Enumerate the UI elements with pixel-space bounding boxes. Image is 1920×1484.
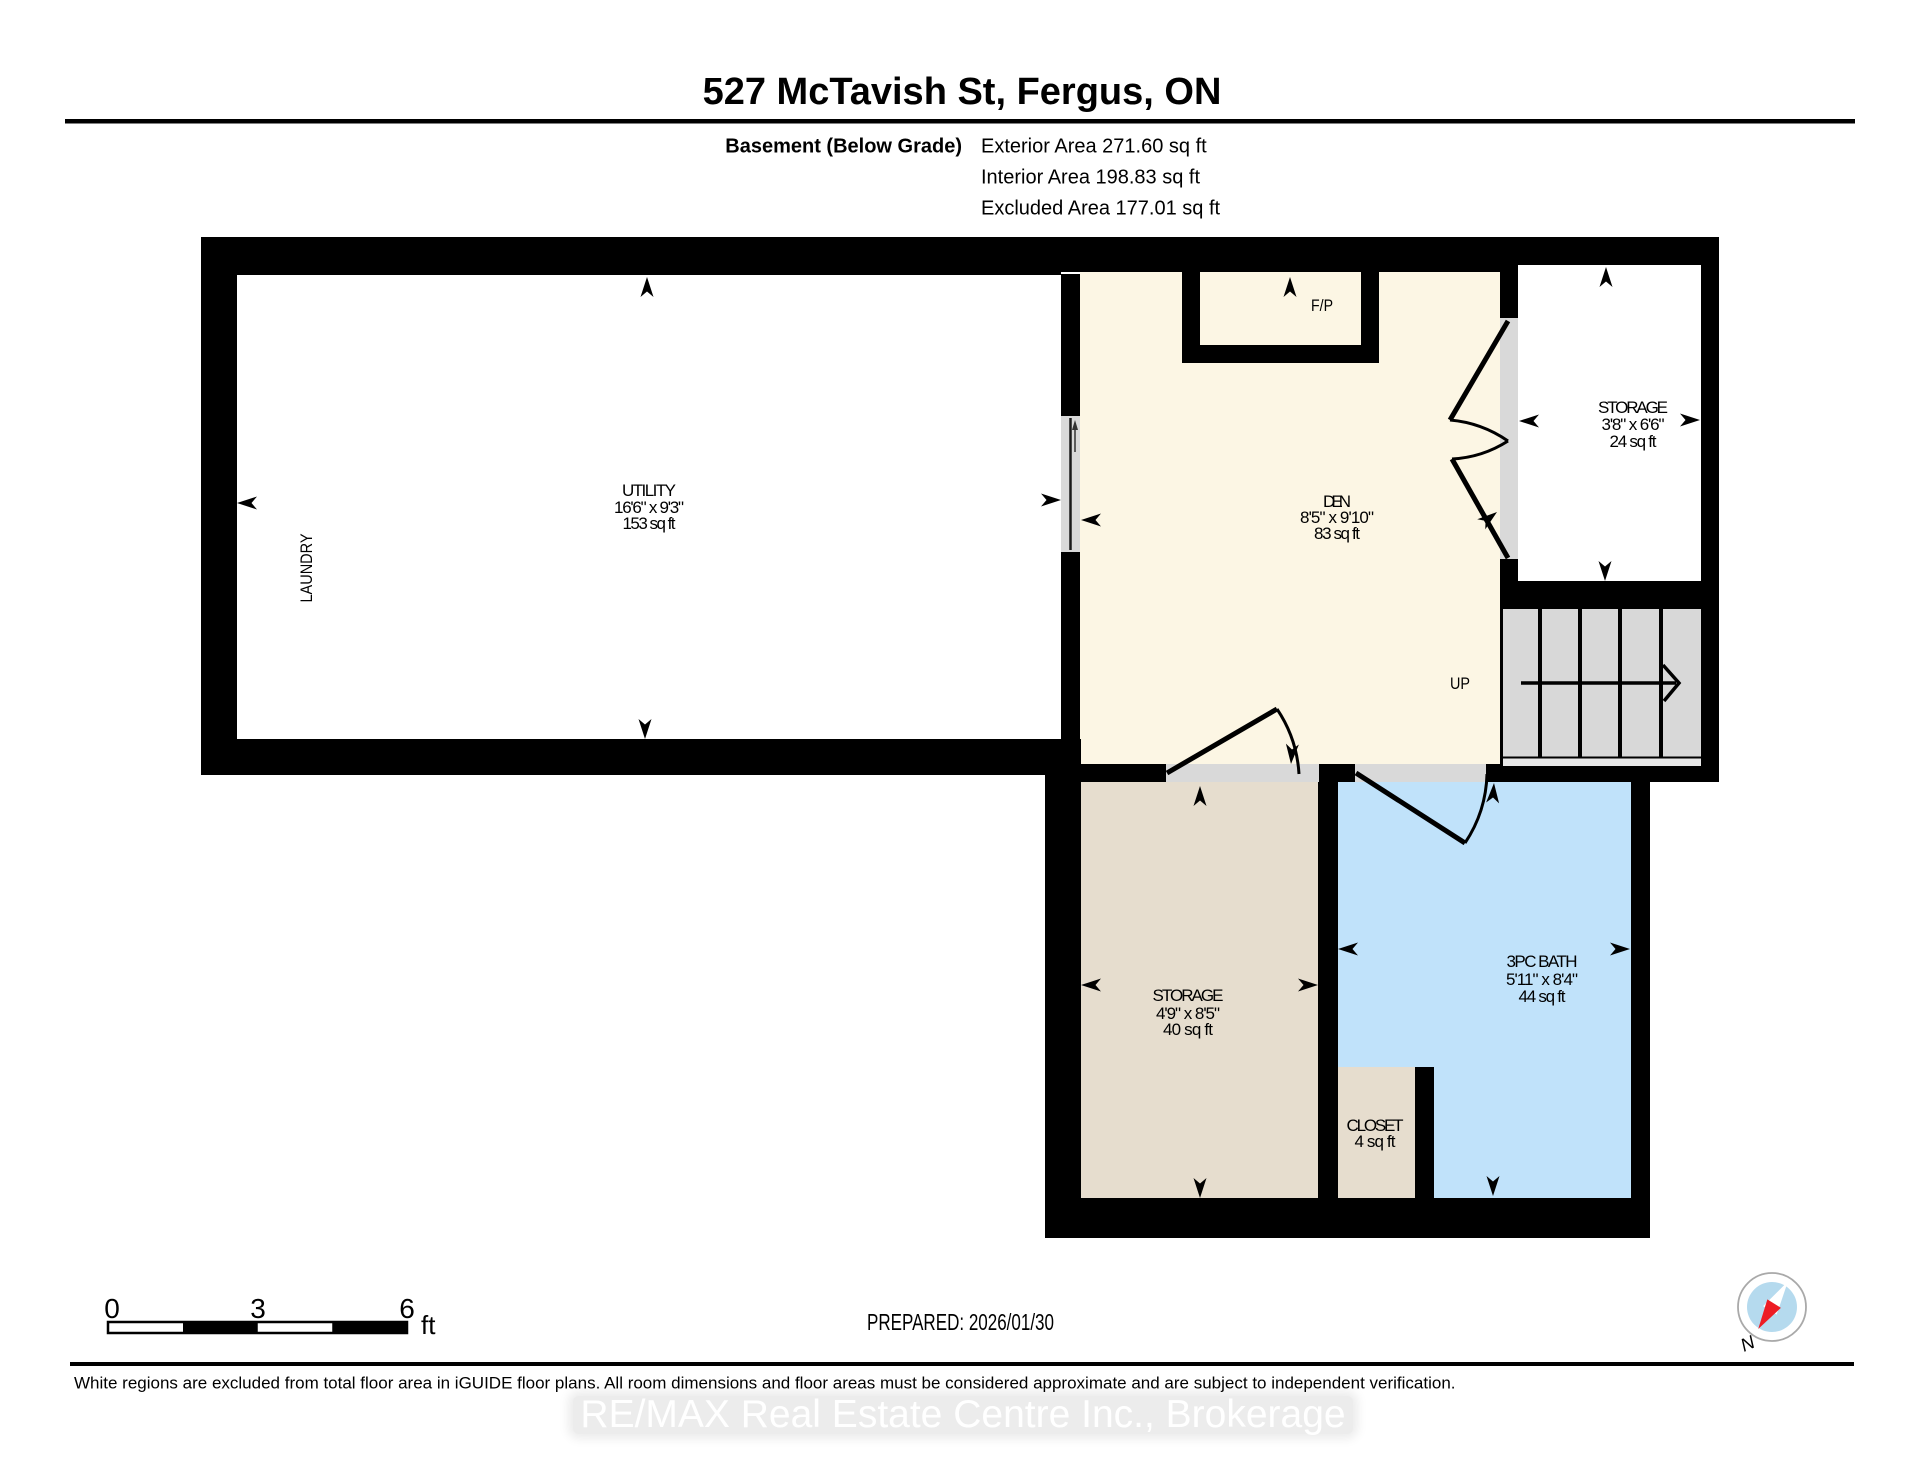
svg-text:527 McTavish St, Fergus, ON: 527 McTavish St, Fergus, ON [703, 71, 1222, 113]
svg-text:LAUNDRY: LAUNDRY [297, 534, 316, 603]
svg-text:0: 0 [104, 1293, 120, 1324]
svg-text:Exterior Area 271.60 sq ft: Exterior Area 271.60 sq ft [981, 136, 1207, 158]
svg-text:44 sq ft: 44 sq ft [1519, 987, 1566, 1006]
svg-text:PREPARED: 2026/01/30: PREPARED: 2026/01/30 [867, 1309, 1054, 1335]
svg-text:153 sq ft: 153 sq ft [623, 514, 676, 533]
svg-text:24 sq ft: 24 sq ft [1610, 432, 1657, 451]
svg-text:3PC BATH: 3PC BATH [1507, 952, 1578, 971]
svg-text:4 sq ft: 4 sq ft [1355, 1132, 1396, 1151]
svg-text:Interior Area 198.83 sq ft: Interior Area 198.83 sq ft [981, 167, 1200, 189]
svg-text:Basement (Below Grade): Basement (Below Grade) [725, 136, 962, 158]
svg-text:F/P: F/P [1311, 296, 1333, 315]
svg-text:UP: UP [1450, 675, 1470, 693]
svg-text:White regions are excluded fro: White regions are excluded from total fl… [74, 1374, 1456, 1393]
svg-text:ft: ft [421, 1310, 436, 1340]
svg-text:6: 6 [399, 1293, 415, 1324]
svg-text:40 sq ft: 40 sq ft [1163, 1020, 1213, 1039]
svg-text:Excluded Area 177.01 sq ft: Excluded Area 177.01 sq ft [981, 198, 1220, 220]
svg-text:STORAGE: STORAGE [1153, 986, 1224, 1005]
svg-text:3: 3 [250, 1293, 266, 1324]
svg-text:83 sq ft: 83 sq ft [1314, 524, 1360, 543]
